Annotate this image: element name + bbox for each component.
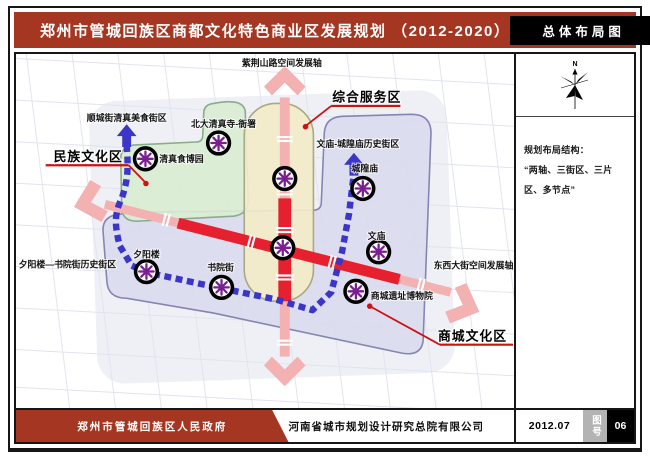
node-shuyuanjie: [211, 276, 233, 298]
footer-bar: 郑州市管城回族区人民政府 河南省城市规划设计研究总院有限公司 2012.07 图…: [14, 410, 636, 444]
node-zonghe-upper: [274, 168, 296, 190]
label-district-minzu: 民族文化区: [54, 149, 123, 164]
figure-number-value: 06: [607, 410, 634, 442]
map-panel: 紫荆山路空间发展轴 东西大街空间发展轴 民族文化区 综合服务区 商城文化区 顺城…: [16, 54, 514, 408]
sheet-title: 郑州市管城回族区商都文化特色商业区发展规划 （2012-2020）: [14, 20, 510, 41]
label-node-xiyanglou: 夕阳楼: [133, 249, 160, 260]
compass-n-label: N: [572, 61, 577, 68]
label-node-chenghuang: 城隍庙: [351, 163, 378, 174]
footer-right: 2012.07 图号 06: [514, 410, 634, 442]
title-bar: 郑州市管城回族区商都文化特色商业区发展规划 （2012-2020） 总体布局图: [14, 12, 636, 48]
label-node-beida: 北大清真寺-衙署: [191, 118, 256, 129]
node-xiyanglou: [136, 261, 158, 283]
footer-left: 郑州市管城回族区人民政府 河南省城市规划设计研究总院有限公司: [16, 410, 514, 442]
label-axis-east: 东西大街空间发展轴: [434, 260, 514, 271]
structure-text: “两轴、三街区、三片区、多节点”: [524, 161, 629, 201]
label-node-wenmiao: 文庙: [368, 230, 386, 241]
structure-title: 规划布局结构：: [524, 141, 629, 161]
label-district-zonghe: 综合服务区: [332, 89, 401, 104]
label-node-qingzhen: 清真食博园: [159, 153, 203, 164]
label-street-wenmiao: 文庙-城隍庙历史街区: [316, 138, 399, 149]
sheet-badge: 总体布局图: [510, 16, 650, 45]
node-chenghuangmiao: [352, 178, 374, 200]
government-banner: 郑州市管城回族区人民政府: [16, 410, 289, 442]
node-beidaqingzhensi: [208, 132, 230, 154]
content-row: 紫荆山路空间发展轴 东西大街空间发展轴 民族文化区 综合服务区 商城文化区 顺城…: [14, 52, 636, 410]
node-qingzhenshiboyuan: [135, 148, 157, 170]
node-wenmiao: [368, 241, 390, 263]
label-node-shuyuan: 书院街: [207, 262, 234, 273]
sheet-frame: 郑州市管城回族区商都文化特色商业区发展规划 （2012-2020） 总体布局图: [8, 6, 642, 452]
label-street-xiyanglou: 夕阳楼—书院街历史街区: [19, 259, 117, 270]
node-shangcheng-museum: [345, 280, 367, 302]
label-axis-north: 紫荆山路空间发展轴: [242, 57, 322, 68]
plan-sheet: 郑州市管城回族区商都文化特色商业区发展规划 （2012-2020） 总体布局图: [0, 0, 650, 459]
structure-note: 规划布局结构： “两轴、三街区、三片区、多节点”: [516, 117, 634, 200]
figure-number-label: 图号: [583, 410, 607, 442]
node-center-crossing: [272, 237, 294, 259]
compass-box: N: [516, 54, 634, 117]
date-label: 2012.07: [516, 410, 583, 442]
north-arrow-icon: N: [554, 57, 596, 113]
sidebar: N 规划布局结构： “两轴、三街区、三片区、多节点”: [514, 54, 634, 408]
plan-map: 紫荆山路空间发展轴 东西大街空间发展轴 民族文化区 综合服务区 商城文化区 顺城…: [16, 54, 514, 408]
axis-arrow-north: [264, 66, 306, 96]
label-district-shangcheng: 商城文化区: [438, 329, 507, 344]
label-node-shangcheng: 商城遗址博物院: [371, 290, 433, 301]
company-name: 河南省城市规划设计研究总院有限公司: [289, 410, 485, 442]
label-street-shuncheng: 顺城街清真美食街区: [87, 112, 167, 123]
